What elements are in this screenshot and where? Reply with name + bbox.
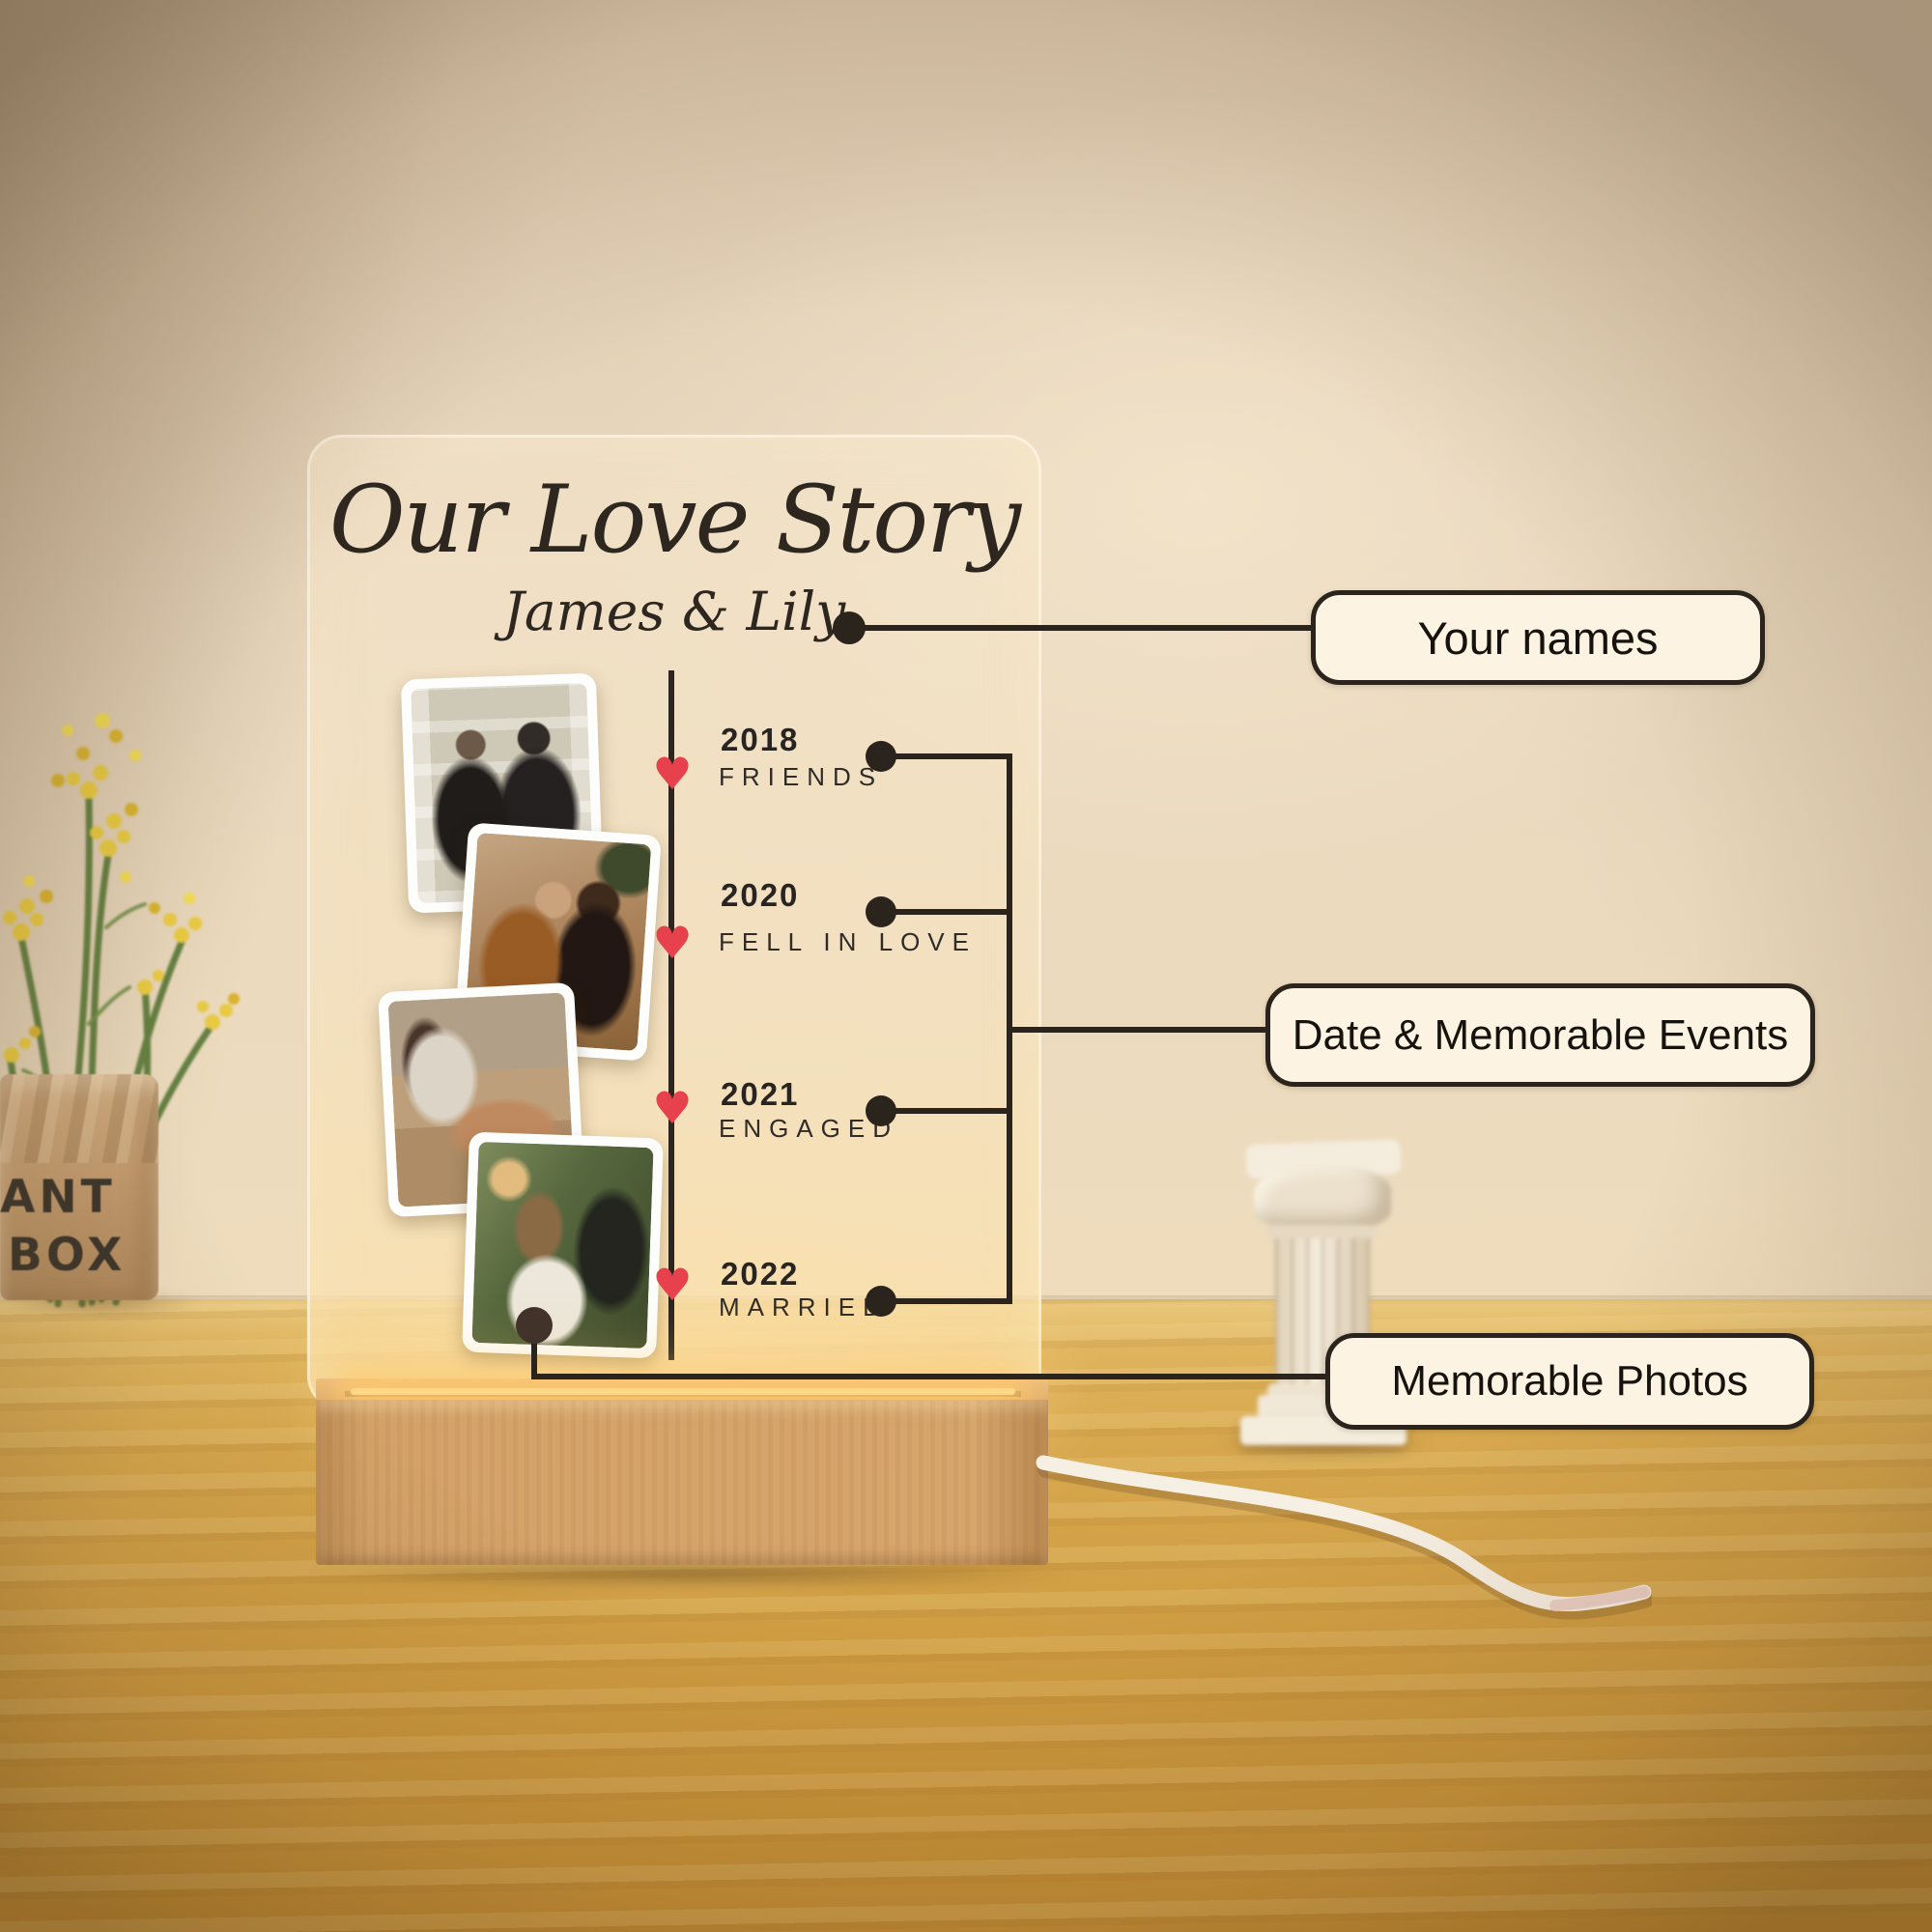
base-front-face	[316, 1400, 1048, 1565]
callout-your-names: Your names	[1311, 590, 1765, 685]
dot-2020-icon	[866, 896, 896, 927]
callout-date-events-label: Date & Memorable Events	[1293, 1011, 1789, 1060]
connector-2021-line	[881, 1108, 1012, 1114]
led-glow-line	[351, 1388, 1015, 1395]
wooden-base	[316, 1378, 1048, 1565]
callout-memorable-photos-label: Memorable Photos	[1391, 1357, 1747, 1406]
connector-events-line	[1012, 1027, 1265, 1033]
callout-date-events: Date & Memorable Events	[1265, 983, 1815, 1087]
connector-2020-line	[881, 909, 1012, 915]
pot-text-line-1: LANT	[0, 1171, 116, 1224]
callout-memorable-photos: Memorable Photos	[1325, 1333, 1814, 1430]
connector-names-line	[849, 625, 1311, 631]
connector-2018-line	[881, 753, 1012, 759]
photo-wedding	[462, 1132, 664, 1359]
plant-pot: LANT BOX	[0, 1074, 158, 1300]
pot-wrinkle-texture	[0, 1074, 158, 1163]
dot-2018-icon	[866, 741, 896, 772]
dot-2021-icon	[866, 1095, 896, 1126]
dot-2022-icon	[866, 1286, 896, 1317]
photo-wedding-image	[471, 1142, 653, 1349]
callout-your-names-label: Your names	[1417, 611, 1658, 665]
pot-text-line-2: BOX	[8, 1229, 126, 1282]
power-cable	[1014, 1430, 1652, 1652]
names-dot-icon	[833, 611, 866, 644]
photos-dot-icon	[516, 1307, 553, 1344]
connector-2022-line	[881, 1298, 1012, 1304]
acrylic-plaque	[307, 435, 1041, 1410]
connector-photos-line	[531, 1374, 1325, 1379]
